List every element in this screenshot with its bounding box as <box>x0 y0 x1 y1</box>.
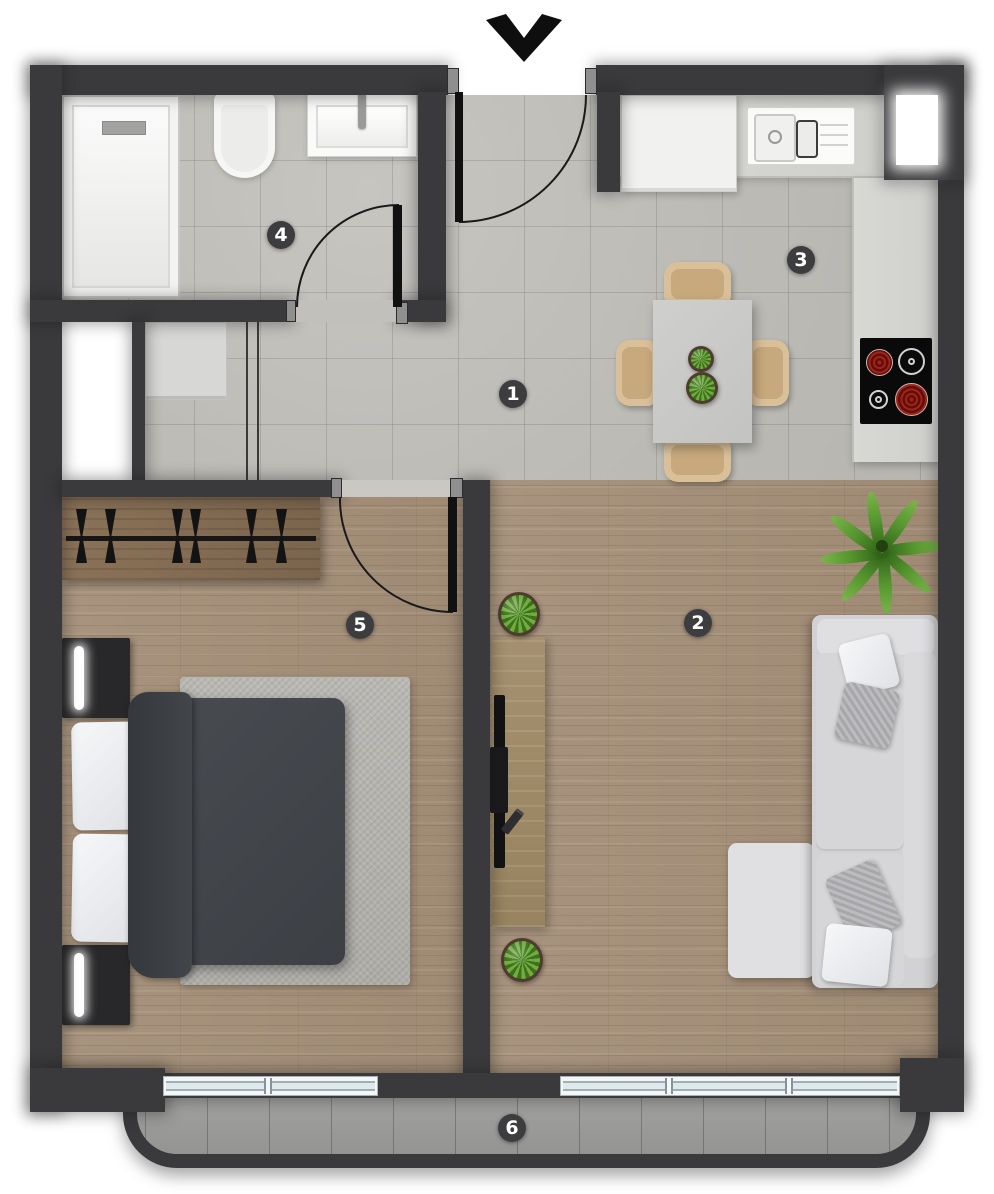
table-plant-small <box>688 346 714 372</box>
wall-bottom-right-corner <box>900 1058 964 1112</box>
room-marker-3: 3 <box>787 246 815 274</box>
bedroom-door-post-left <box>331 478 342 498</box>
wall-bottom-left-corner <box>30 1068 165 1112</box>
sofa-pillow-white <box>821 923 893 988</box>
dining-chair-left <box>616 340 656 406</box>
wardrobe <box>62 497 320 580</box>
bathroom-sink <box>307 92 417 157</box>
nightstand-bottom <box>62 945 130 1025</box>
bed-duvet-fold <box>128 692 192 978</box>
entrance-door-post-left <box>447 68 459 94</box>
washing-machine <box>145 322 227 400</box>
burner-front-left-on <box>866 349 893 376</box>
drainboard-line <box>820 144 848 146</box>
kitchen-window <box>896 95 938 165</box>
floor-plan: 1 2 3 4 5 6 <box>0 0 994 1194</box>
sofa-pillow-gray <box>834 681 901 749</box>
wardrobe-rail <box>66 536 316 541</box>
toilet <box>214 93 275 178</box>
sink-faucet <box>358 91 366 129</box>
potted-plant-bottom <box>501 938 543 982</box>
bathroom-door-sill <box>294 300 398 322</box>
living-room-window <box>560 1076 900 1096</box>
burner-back-left-off <box>869 390 888 409</box>
wall-right <box>938 65 964 1097</box>
shower-tray <box>62 95 180 298</box>
cooktop <box>860 338 932 424</box>
entrance-door-post-right <box>585 68 597 94</box>
room-marker-1: 1 <box>499 380 527 408</box>
bathroom-door-post-left <box>286 300 296 322</box>
dining-chair-bottom <box>664 440 731 482</box>
tv-mount <box>490 747 508 813</box>
burner-back-right-on <box>895 383 928 416</box>
niche-partition-line <box>257 322 259 480</box>
dining-chair-top <box>664 262 731 304</box>
room-marker-5: 5 <box>346 611 374 639</box>
light-shaft <box>62 322 132 480</box>
wall-bedroom-top <box>62 480 340 497</box>
wall-left <box>30 65 62 1112</box>
dining-chair-right <box>749 340 789 406</box>
kitchen-sink-unit <box>747 107 855 165</box>
sink-drain-dot <box>768 130 782 144</box>
window-divider <box>665 1078 673 1094</box>
shower-drain <box>102 121 146 135</box>
nightstand-light <box>74 646 84 710</box>
bedroom-door-sill <box>340 480 463 497</box>
burner-front-right-off <box>898 348 925 375</box>
toilet-seat <box>221 105 268 172</box>
wall-niche-divider <box>132 322 145 480</box>
niche-partition-line <box>246 322 248 480</box>
window-glass <box>563 1081 897 1091</box>
nightstand-light <box>74 953 84 1017</box>
window-divider <box>785 1078 793 1094</box>
table-plant-large <box>686 372 718 404</box>
entrance-arrow-icon <box>478 8 570 66</box>
drainboard-line <box>820 124 848 126</box>
wall-bedroom-living <box>463 480 490 1077</box>
wall-stub-fridge <box>597 92 620 192</box>
potted-plant-top <box>498 592 540 636</box>
wall-bathroom-bottom <box>30 300 292 322</box>
nightstand-top <box>62 638 130 718</box>
wall-bathroom-right <box>418 92 446 322</box>
sofa-chaise <box>728 843 815 978</box>
palm-center <box>876 540 888 552</box>
balcony-floor <box>137 1090 916 1154</box>
room-marker-2: 2 <box>684 609 712 637</box>
bedroom-window <box>163 1076 378 1096</box>
room-marker-6: 6 <box>498 1114 526 1142</box>
bathroom-door-post-right <box>396 302 408 324</box>
refrigerator <box>621 95 737 192</box>
sofa-backrest <box>903 652 936 958</box>
wall-top-left <box>30 65 448 95</box>
room-marker-4: 4 <box>267 221 295 249</box>
bedroom-door-post-right <box>450 478 463 498</box>
window-divider <box>264 1078 272 1094</box>
drainboard-line <box>820 134 848 136</box>
palm-plant <box>824 494 944 610</box>
sink-tap <box>796 120 818 158</box>
